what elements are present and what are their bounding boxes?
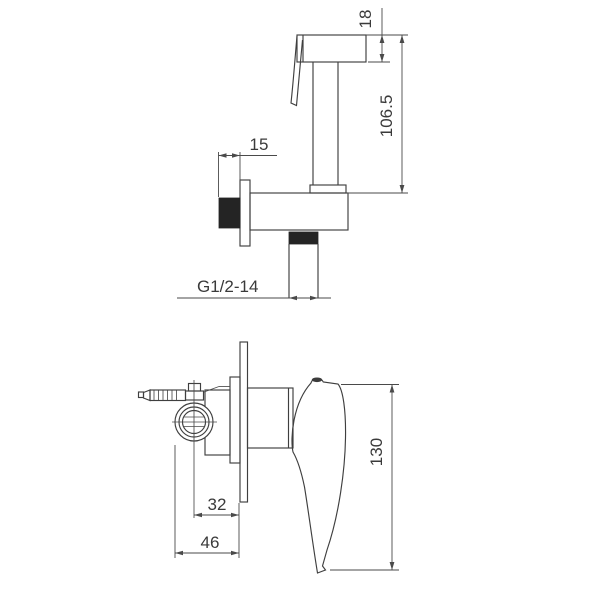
sprayer-head bbox=[297, 35, 366, 62]
valve-stem bbox=[248, 388, 294, 448]
valve-cap-top bbox=[189, 384, 201, 392]
spec-drawing-svg: 18 106.5 15 G1/2-14 bbox=[0, 0, 600, 600]
dim-overall-height: 106.5 bbox=[348, 35, 408, 193]
holder-block bbox=[250, 193, 348, 230]
dim-center-depth-label: 32 bbox=[208, 495, 227, 514]
thread-callout-label: G1/2-14 bbox=[197, 277, 258, 296]
sprayer-handle-flare bbox=[310, 185, 346, 193]
lever-handle bbox=[292, 379, 346, 574]
dim-wall-offset-label: 15 bbox=[250, 135, 269, 154]
spout-tip-cone bbox=[144, 390, 151, 401]
thread-callout: G1/2-14 bbox=[177, 277, 331, 300]
dim-total-depth-label: 46 bbox=[201, 533, 220, 552]
dim-handle-length: 130 bbox=[330, 385, 399, 571]
spout-tip bbox=[139, 392, 144, 398]
dim-handle-length-label: 130 bbox=[367, 438, 386, 466]
spout-threads bbox=[154, 391, 177, 401]
escutcheon-plate bbox=[240, 342, 248, 502]
handle-button bbox=[312, 378, 322, 383]
valve-cap-collar bbox=[186, 391, 204, 400]
valve-flange bbox=[230, 377, 240, 463]
sprayer-drawing bbox=[219, 35, 366, 298]
dim-head-height-label: 18 bbox=[356, 10, 375, 29]
threaded-inlet bbox=[219, 198, 240, 228]
dim-wall-offset: 15 bbox=[219, 135, 278, 197]
outlet-collar bbox=[289, 232, 318, 244]
technical-drawing-canvas: 18 106.5 15 G1/2-14 bbox=[0, 0, 600, 600]
mixer-valve-drawing bbox=[139, 342, 346, 573]
wall-plate bbox=[240, 180, 250, 246]
dim-overall-height-label: 106.5 bbox=[377, 95, 396, 138]
